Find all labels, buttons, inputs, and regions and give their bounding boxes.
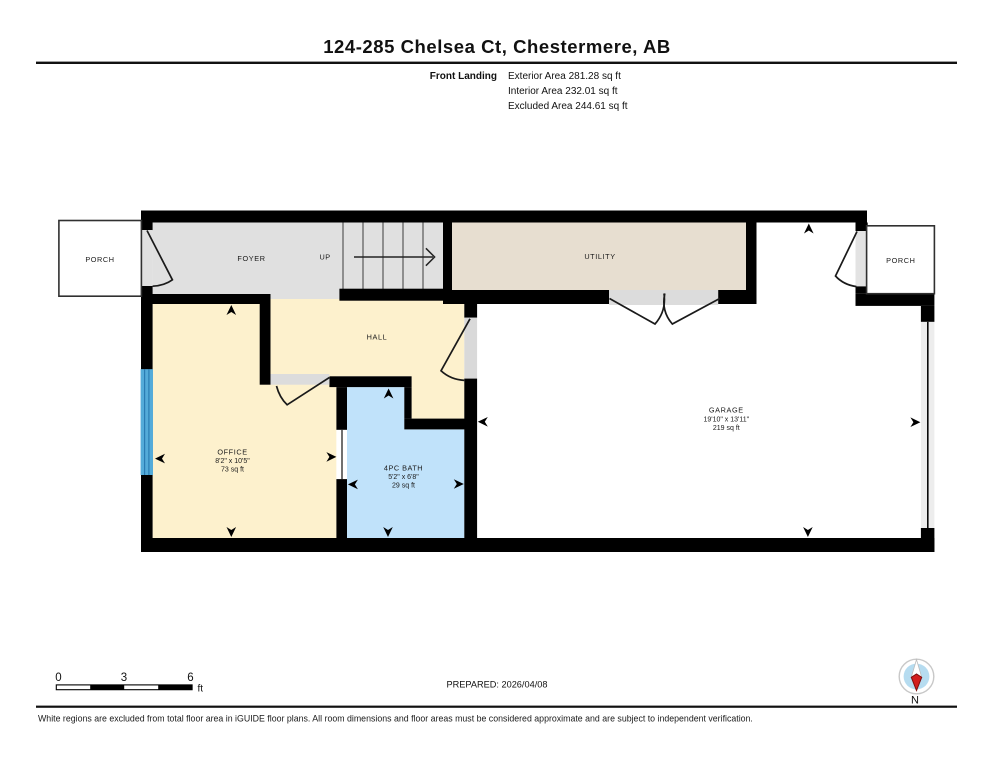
svg-text:73 sq ft: 73 sq ft: [221, 466, 244, 473]
svg-text:FOYER: FOYER: [237, 254, 265, 263]
svg-text:Front Landing: Front Landing: [430, 71, 497, 82]
svg-text:219 sq ft: 219 sq ft: [713, 425, 740, 432]
svg-text:8'2" x 10'5": 8'2" x 10'5": [215, 458, 250, 465]
svg-text:0: 0: [55, 672, 61, 684]
svg-text:4PC BATH: 4PC BATH: [384, 464, 423, 473]
svg-text:Excluded Area 244.61 sq ft: Excluded Area 244.61 sq ft: [508, 101, 628, 112]
svg-text:124-285 Chelsea Ct, Chestermer: 124-285 Chelsea Ct, Chestermere, AB: [323, 36, 671, 57]
svg-text:5'2" x 6'8": 5'2" x 6'8": [388, 474, 419, 481]
svg-text:ft: ft: [198, 684, 204, 695]
svg-text:PREPARED: 2026/04/08: PREPARED: 2026/04/08: [447, 680, 548, 690]
svg-text:Interior Area 232.01 sq ft: Interior Area 232.01 sq ft: [508, 86, 618, 97]
svg-text:GARAGE: GARAGE: [709, 406, 744, 415]
svg-text:UTILITY: UTILITY: [584, 252, 615, 261]
svg-text:3: 3: [121, 672, 127, 684]
svg-text:OFFICE: OFFICE: [217, 448, 247, 457]
svg-text:6: 6: [187, 672, 193, 684]
svg-text:PORCH: PORCH: [85, 255, 114, 264]
svg-text:N: N: [911, 695, 919, 707]
svg-text:Exterior Area 281.28 sq ft: Exterior Area 281.28 sq ft: [508, 71, 621, 82]
svg-text:White regions are excluded fro: White regions are excluded from total fl…: [38, 714, 753, 724]
svg-text:HALL: HALL: [367, 333, 388, 342]
svg-text:19'10" x 13'11": 19'10" x 13'11": [703, 417, 749, 424]
svg-text:PORCH: PORCH: [886, 256, 915, 265]
svg-text:UP: UP: [320, 253, 331, 262]
svg-text:29 sq ft: 29 sq ft: [392, 482, 415, 489]
